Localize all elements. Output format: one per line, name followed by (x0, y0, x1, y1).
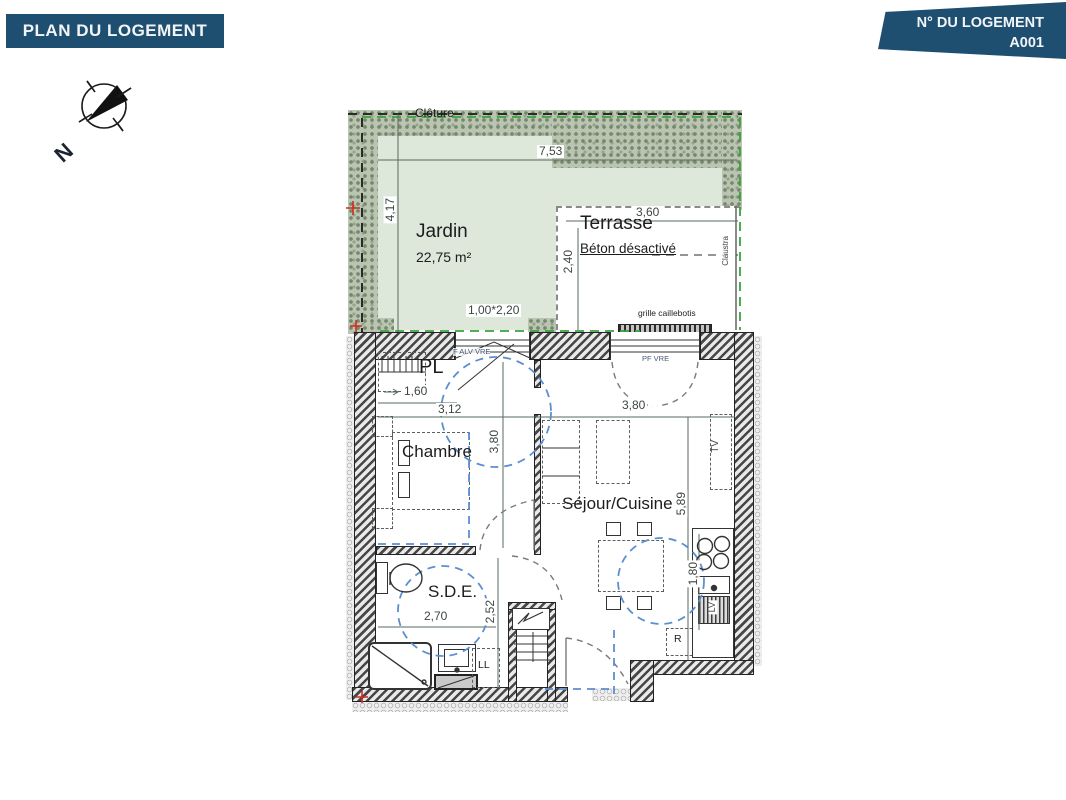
hedge-top-right (552, 110, 742, 168)
unit-number-label: N° DU LOGEMENT (917, 13, 1066, 33)
washing-machine-label: LL (478, 660, 490, 672)
dining-table (598, 540, 664, 592)
page-title: PLAN DU LOGEMENT (23, 21, 208, 41)
unit-number-banner: N° DU LOGEMENT A001 (878, 2, 1066, 64)
chair-4 (637, 596, 652, 610)
floor-plan-page: PLAN DU LOGEMENT N° DU LOGEMENT A001 N (0, 0, 1066, 800)
insulation-right (754, 336, 762, 666)
fence-label: Clôture (415, 107, 454, 120)
nightstand-2 (372, 508, 393, 529)
dim-kitchen-run: 1,80 (687, 560, 700, 587)
dim-garden-width: 7,53 (537, 145, 564, 158)
room-label-living: Séjour/Cuisine (562, 495, 673, 514)
grate-label: grille caillebotis (638, 309, 696, 318)
partition-hall-a (534, 360, 541, 388)
dim-living-width: 3,80 (620, 399, 647, 412)
garden-label: Jardin (416, 222, 468, 243)
bedroom-window-label: F ALV VRE (453, 348, 490, 356)
chair-1 (606, 522, 621, 536)
hedge-bottom (348, 318, 394, 332)
kitchen-sink (698, 576, 730, 594)
insulation-left (346, 336, 354, 700)
dim-shower-depth: 2,52 (484, 598, 497, 625)
dim-shower-width: 2,70 (422, 610, 449, 623)
toilet-tank (376, 562, 388, 594)
wall-entry-step (630, 660, 654, 702)
dim-bedroom-depth: 3,80 (488, 428, 501, 455)
unit-number-value: A001 (1009, 33, 1066, 53)
dim-bedroom-width: 3,12 (436, 403, 463, 416)
hedge-left (348, 110, 378, 334)
room-label-bedroom: Chambre (402, 443, 472, 462)
partition-living (534, 414, 541, 555)
chair-2 (637, 522, 652, 536)
dim-terrace-depth: 2,40 (562, 248, 575, 275)
hedge-right (722, 110, 742, 210)
fridge-label: R (674, 634, 682, 646)
partition-bedroom-sde (376, 546, 476, 555)
dim-living-depth: 5,89 (675, 490, 688, 517)
sideboard (596, 420, 630, 484)
dim-garden-depth: 4,17 (384, 196, 397, 223)
dim-terrace-width: 3,60 (634, 206, 661, 219)
dim-closet-width: 1,60 (402, 385, 429, 398)
chair-3 (606, 596, 621, 610)
vanity-basin (444, 649, 469, 667)
compass-icon (79, 81, 131, 131)
living-window-label: PF VRE (642, 355, 669, 363)
terrace-finish-label: Béton désactivé (580, 242, 676, 257)
tv-label: TV (711, 438, 722, 455)
dishwasher-label: LV (708, 600, 717, 614)
shower-tray (368, 642, 432, 690)
dim-garden-gate: 1,00*2,20 (466, 304, 521, 317)
pillow-2 (398, 472, 410, 498)
title-banner: PLAN DU LOGEMENT (6, 14, 224, 48)
claustra-label: Claustra (722, 234, 730, 268)
wall-right (734, 332, 754, 675)
room-label-shower: S.D.E. (428, 583, 477, 602)
north-label: N (49, 138, 78, 168)
nightstand-1 (372, 416, 393, 437)
wall-top-b (530, 332, 610, 360)
garden-area-label: 22,75 m² (416, 250, 471, 265)
hedge-bottom-2 (528, 318, 556, 332)
sofa (542, 420, 580, 504)
insulation-bottom (352, 702, 568, 712)
water-heater-box (512, 608, 550, 630)
room-label-closet: PL (419, 356, 443, 378)
